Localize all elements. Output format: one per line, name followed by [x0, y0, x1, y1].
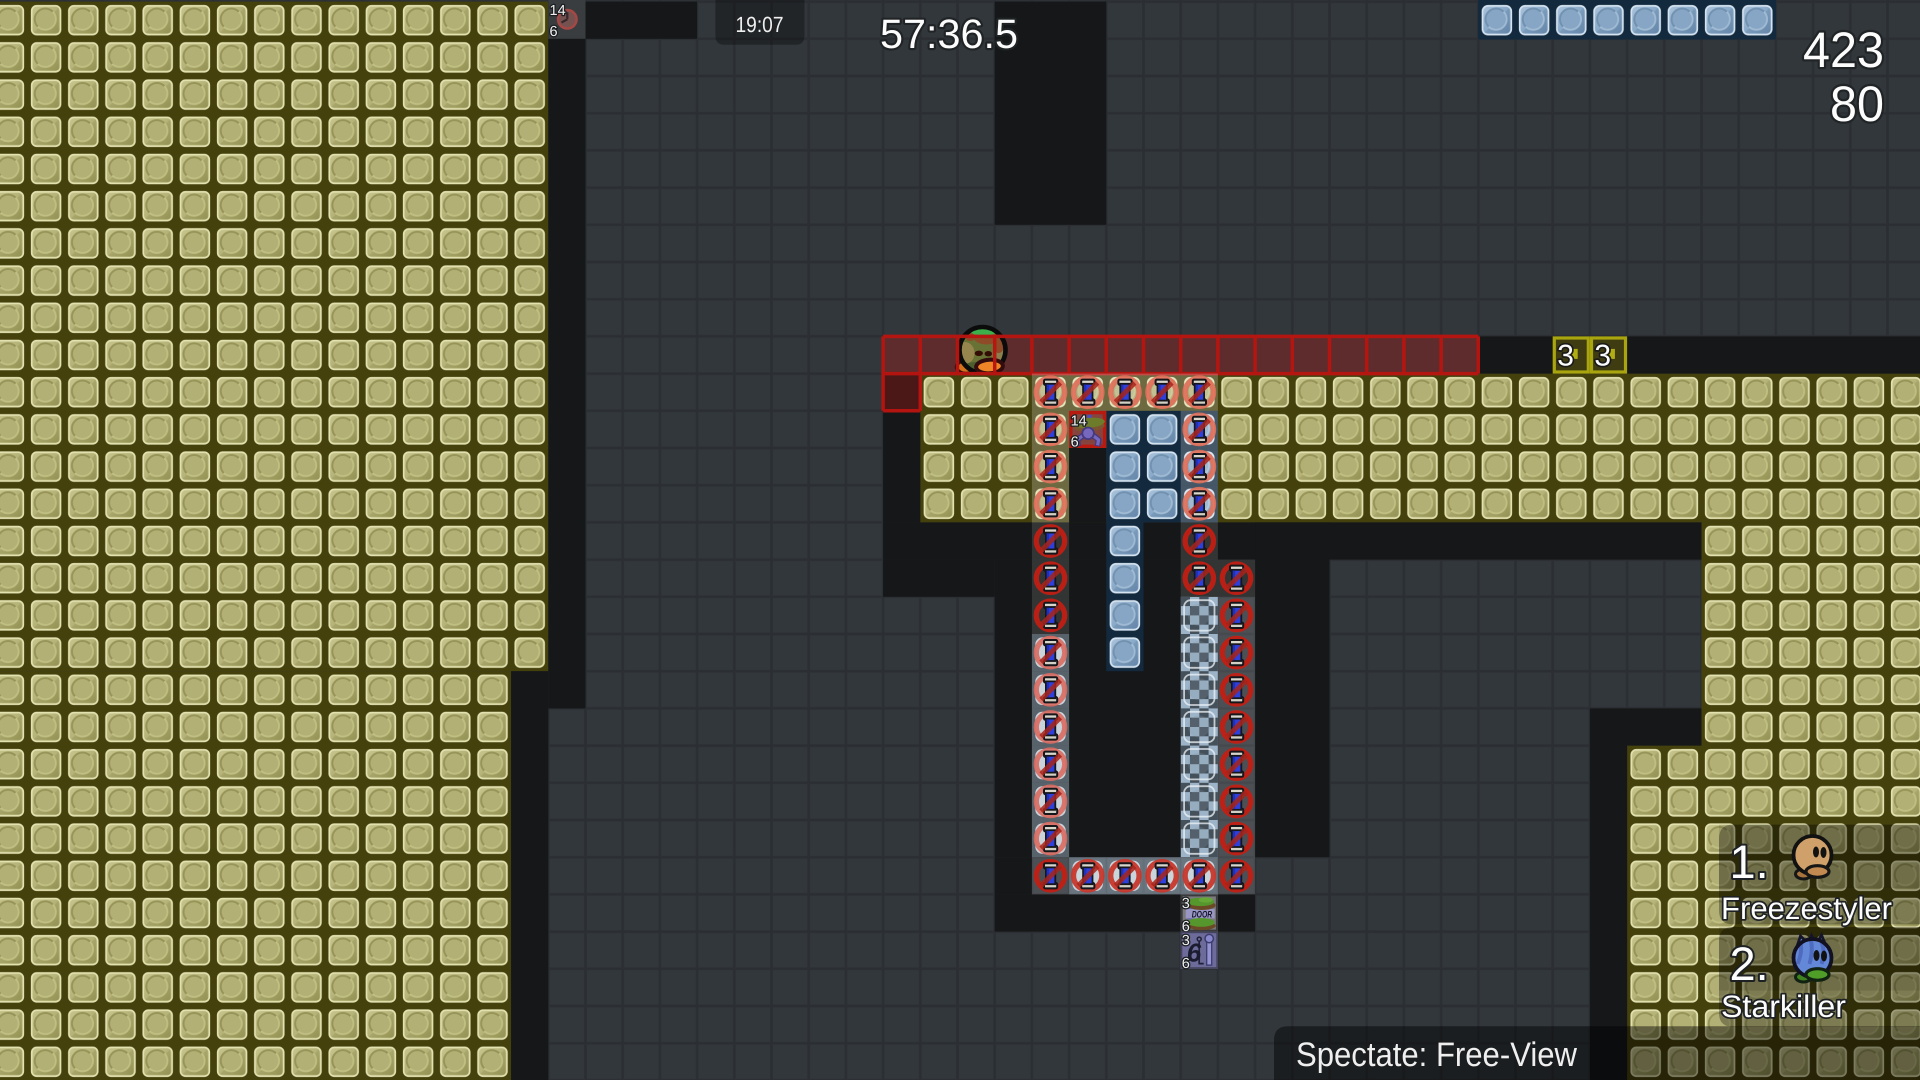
svg-text:423: 423 [1803, 22, 1884, 78]
svg-text:80: 80 [1830, 76, 1884, 132]
svg-text:6: 6 [1182, 956, 1190, 972]
svg-text:6: 6 [1071, 435, 1079, 451]
svg-text:14: 14 [550, 3, 566, 19]
svg-text:3: 3 [1182, 933, 1190, 949]
svg-text:3: 3 [1557, 339, 1574, 372]
svg-text:3: 3 [1594, 339, 1611, 372]
svg-text:3: 3 [1182, 896, 1190, 912]
svg-text:Spectate: Free-View: Spectate: Free-View [1296, 1036, 1577, 1074]
svg-text:Starkiller: Starkiller [1721, 989, 1846, 1024]
svg-text:6: 6 [550, 24, 558, 40]
svg-text:DOOR: DOOR [1192, 910, 1213, 921]
svg-text:Freezestyler: Freezestyler [1721, 891, 1892, 926]
svg-text:1.: 1. [1730, 835, 1769, 888]
svg-text:57:36.5: 57:36.5 [880, 11, 1018, 57]
svg-text:2.: 2. [1730, 937, 1769, 990]
svg-text:19:07: 19:07 [736, 12, 784, 37]
svg-text:14: 14 [1071, 413, 1087, 429]
